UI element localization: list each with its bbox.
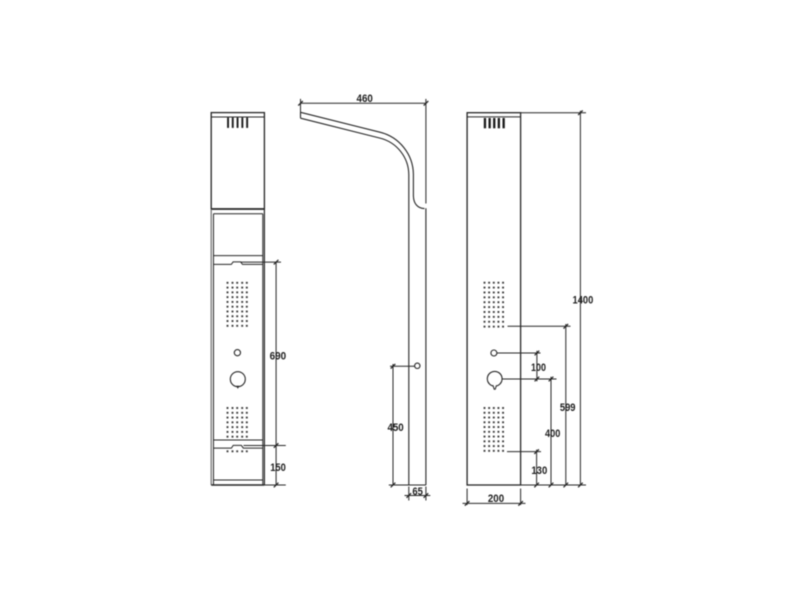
- svg-text:599: 599: [560, 402, 576, 414]
- svg-text:1400: 1400: [573, 295, 594, 307]
- svg-text:65: 65: [412, 486, 423, 498]
- svg-text:130: 130: [531, 465, 547, 477]
- svg-text:400: 400: [545, 428, 560, 440]
- svg-text:460: 460: [357, 93, 373, 105]
- svg-text:690: 690: [270, 350, 287, 362]
- svg-text:450: 450: [387, 422, 403, 434]
- svg-text:150: 150: [270, 462, 286, 474]
- svg-text:200: 200: [488, 493, 504, 505]
- svg-text:100: 100: [531, 362, 546, 374]
